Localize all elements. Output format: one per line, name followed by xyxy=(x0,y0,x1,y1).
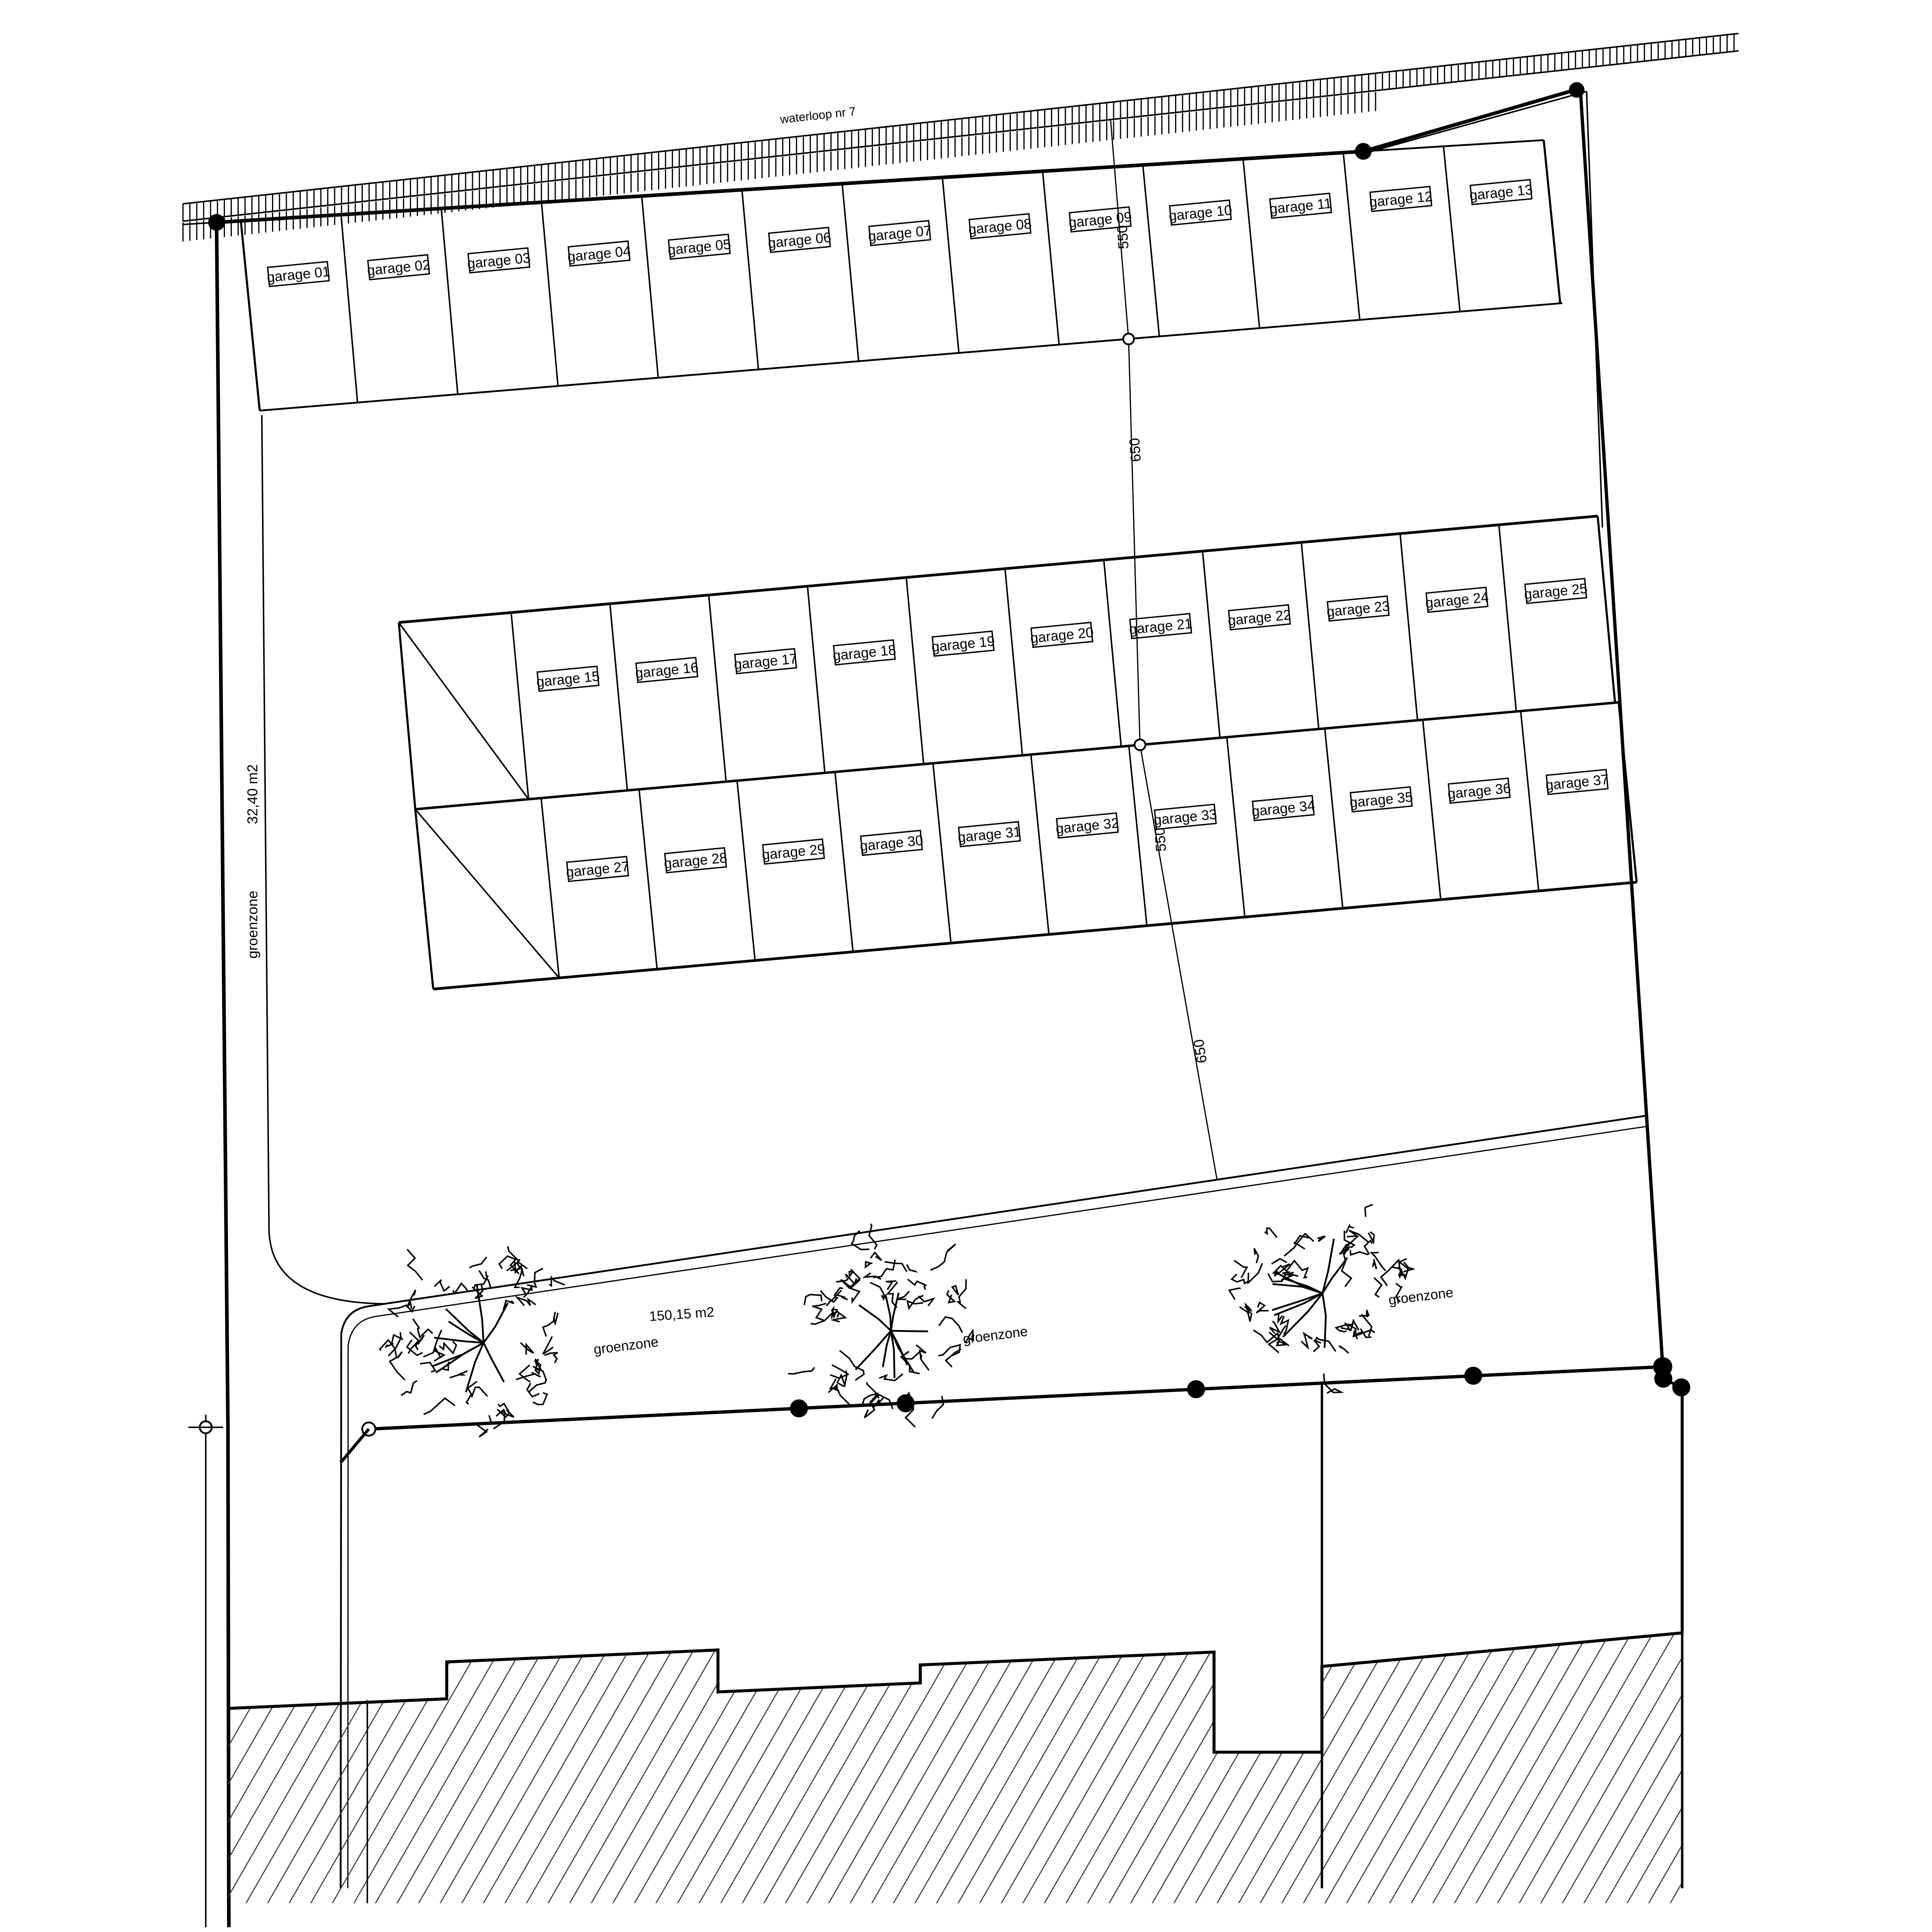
hatch-line xyxy=(1032,1624,1205,1924)
boundary-point-dot xyxy=(790,1400,808,1418)
garage-label: garage 02 xyxy=(366,255,431,280)
tree-foliage-scribble xyxy=(952,1286,958,1295)
tree-foliage-scribble xyxy=(1265,1228,1277,1238)
ramp-cell-diagonal xyxy=(415,809,559,978)
garage-cell-divider xyxy=(808,586,825,773)
green-strip-east-line xyxy=(262,415,384,1304)
tree-foliage-scribble xyxy=(862,1382,877,1405)
tree-foliage-scribble xyxy=(812,1303,826,1320)
tree-foliage-scribble xyxy=(907,1295,923,1308)
survey-circle-2 xyxy=(1134,740,1145,750)
garage-label: garage 04 xyxy=(566,241,631,266)
boundary-west xyxy=(216,223,228,1426)
tree-3 xyxy=(1229,1204,1413,1393)
building-outline xyxy=(228,1633,1682,1752)
hatch-line xyxy=(752,1624,924,1924)
tree-foliage-scribble xyxy=(871,1253,882,1260)
tree-foliage-scribble xyxy=(420,1362,435,1372)
garage-row-left-edge xyxy=(415,809,434,989)
hatch-line xyxy=(450,1624,622,1924)
tree-foliage-scribble xyxy=(907,1265,915,1272)
garage-cell-divider xyxy=(541,202,558,386)
hatch-line xyxy=(1054,1624,1226,1924)
hatch-line xyxy=(1140,1624,1313,1924)
hatch-line xyxy=(191,1624,363,1924)
garage-cell-divider xyxy=(610,604,628,791)
garage-cell-divider xyxy=(639,789,657,969)
hatch-line xyxy=(558,1624,730,1924)
garage-cell-divider xyxy=(1143,165,1160,337)
tree-foliage-scribble xyxy=(520,1343,534,1355)
hatch-line xyxy=(881,1624,1054,1924)
garage-label: garage 27 xyxy=(565,856,630,881)
hatch-line xyxy=(1658,1624,1830,1924)
garage-label: garage 36 xyxy=(1447,778,1512,803)
hatch-line xyxy=(687,1624,859,1924)
hatch-line xyxy=(709,1624,881,1924)
tree-branch xyxy=(859,1305,891,1331)
tree-foliage-scribble xyxy=(1339,1346,1349,1353)
hatch-line xyxy=(320,1624,493,1924)
hatch-line xyxy=(989,1624,1162,1924)
garage-cell-divider xyxy=(441,208,458,394)
hatch-line xyxy=(903,1624,1075,1924)
boundary-northeast xyxy=(1363,88,1580,151)
tree-foliage-scribble xyxy=(543,1318,554,1336)
tree-branch xyxy=(484,1343,504,1382)
hatch-line xyxy=(925,1624,1097,1924)
hatch-line xyxy=(471,1624,644,1924)
garage-label: garage 24 xyxy=(1425,587,1490,612)
tree-foliage-scribble xyxy=(434,1280,450,1291)
hatch-line xyxy=(622,1624,795,1924)
hatch-line xyxy=(1421,1624,1593,1924)
tree-foliage-scribble xyxy=(517,1298,536,1306)
garage-blocks: garage 01garage 02garage 03garage 04gara… xyxy=(216,140,1636,989)
tree-foliage-scribble xyxy=(1254,1248,1259,1263)
tree-foliage-scribble xyxy=(870,1282,886,1300)
hatch-line xyxy=(18,1624,190,1924)
hatch-line xyxy=(1248,1624,1420,1924)
garage-cell-divider xyxy=(1400,534,1417,720)
garage-label: garage 25 xyxy=(1523,578,1588,604)
hatch-line xyxy=(1615,1624,1787,1924)
dim-550-top: 550 xyxy=(1114,224,1131,250)
green-strip-area-label: 32,40 m2 xyxy=(244,764,260,824)
garage-cell-divider xyxy=(737,781,755,960)
tree-foliage-scribble xyxy=(413,1319,432,1337)
hatch-line xyxy=(1550,1624,1723,1924)
tree-foliage-scribble xyxy=(788,1367,815,1374)
hatch-line xyxy=(126,1624,298,1924)
boundary-west-lower xyxy=(228,1426,229,1927)
tree-foliage-scribble xyxy=(469,1257,486,1268)
hatch-line xyxy=(1572,1624,1744,1924)
hatch-line xyxy=(1809,1624,1932,1924)
hatch-line xyxy=(968,1624,1140,1924)
garage-cell-divider xyxy=(1499,525,1516,711)
hatch-line xyxy=(1378,1624,1550,1924)
tree-foliage-scribble xyxy=(916,1345,929,1370)
hatch-line xyxy=(406,1624,579,1924)
garage-label: garage 07 xyxy=(867,221,932,246)
hatch-line xyxy=(1399,1624,1571,1924)
tree-foliage-scribble xyxy=(543,1337,553,1354)
tree-foliage-scribble xyxy=(1365,1204,1373,1217)
green-zone-label-right: groenzone xyxy=(1388,1284,1454,1308)
tree-foliage-scribble xyxy=(407,1249,423,1280)
garage-cell-divider xyxy=(1343,153,1360,320)
hatch-line xyxy=(946,1624,1118,1924)
tree-foliage-scribble xyxy=(958,1279,966,1309)
boundary-corner-ne-dot xyxy=(1569,82,1584,98)
tree-foliage-scribble xyxy=(908,1279,926,1290)
garage-cell-divider xyxy=(1325,728,1343,908)
hatch-line xyxy=(104,1624,277,1924)
garage-label: garage 29 xyxy=(761,839,826,864)
tree-foliage-scribble xyxy=(500,1410,505,1422)
garage-cell-divider xyxy=(1444,146,1460,312)
garage-cell-divider xyxy=(1521,711,1539,891)
hatch-line xyxy=(148,1624,320,1924)
hatch-line xyxy=(816,1624,989,1924)
waterway-label: waterloop nr 7 xyxy=(779,104,856,126)
hatch-line xyxy=(860,1624,1032,1924)
garage-cell-divider xyxy=(1005,569,1022,755)
garage-label: garage 03 xyxy=(466,248,531,273)
garage-cell-divider xyxy=(742,190,759,369)
hatch-line xyxy=(1356,1624,1529,1924)
tree-foliage-scribble xyxy=(1347,1230,1369,1243)
garage-cell-divider xyxy=(1619,702,1637,882)
green-zone-label-mid: groenzone xyxy=(962,1323,1029,1347)
boundary-point-dot xyxy=(1464,1367,1483,1385)
hatch-line xyxy=(1270,1624,1442,1924)
hatch-line xyxy=(1076,1624,1248,1924)
garage-row-left-edge xyxy=(241,221,260,411)
hatch-line xyxy=(1507,1624,1679,1924)
tree-foliage-scribble xyxy=(527,1269,543,1287)
hatch-line xyxy=(385,1624,557,1924)
garage-label: garage 15 xyxy=(536,666,600,691)
hatch-line xyxy=(1486,1624,1658,1924)
tree-foliage-scribble xyxy=(507,1263,520,1271)
tree-foliage-scribble xyxy=(866,1262,872,1267)
tree-foliage-scribble xyxy=(930,1244,956,1270)
garage-cell-divider xyxy=(541,798,559,978)
hatch-line xyxy=(1205,1624,1378,1924)
tree-foliage-scribble xyxy=(811,1311,838,1324)
dim-650-upper: 650 xyxy=(1126,437,1144,463)
waterway-top-line xyxy=(183,34,1739,204)
garage-cell-divider xyxy=(1243,159,1260,328)
tree-foliage-scribble xyxy=(838,1295,848,1300)
hatch-line xyxy=(40,1624,212,1924)
garage-label: garage 21 xyxy=(1128,614,1193,639)
tree-foliage-scribble xyxy=(1359,1310,1369,1317)
hatch-line xyxy=(644,1624,816,1924)
garage-label: garage 08 xyxy=(968,214,1032,239)
tree-foliage-scribble xyxy=(1372,1259,1376,1269)
garage-cell-divider xyxy=(842,184,859,361)
green-zone-label-left: groenzone xyxy=(593,1334,659,1357)
hatch-line xyxy=(838,1624,1010,1924)
tree-foliage-scribble xyxy=(472,1387,488,1397)
tree-foliage-scribble xyxy=(423,1398,455,1415)
tree-foliage-scribble xyxy=(544,1353,558,1363)
garage-label: garage 18 xyxy=(832,640,897,665)
tree-foliage-scribble xyxy=(1248,1263,1262,1282)
garage-label: garage 19 xyxy=(930,631,995,656)
hatch-line xyxy=(1097,1624,1269,1924)
tree-foliage-scribble xyxy=(1229,1288,1240,1299)
hatch-line xyxy=(1594,1624,1766,1924)
tree-foliage-scribble xyxy=(938,1345,960,1355)
building-hatch xyxy=(18,1624,1932,1924)
tree-foliage-scribble xyxy=(836,1272,853,1282)
survey-circle-1 xyxy=(1123,333,1134,344)
hatch-line xyxy=(536,1624,708,1924)
hatch-line xyxy=(1226,1624,1399,1924)
garage-label: garage 30 xyxy=(859,830,924,855)
garage-label: garage 22 xyxy=(1227,605,1292,630)
garage-label: garage 12 xyxy=(1368,186,1433,211)
garage-label: garage 16 xyxy=(634,657,699,682)
garage-row-top-edge xyxy=(216,140,1544,223)
tree-foliage-scribble xyxy=(869,1224,877,1249)
garage-cell-divider xyxy=(1031,755,1049,934)
hatch-line xyxy=(579,1624,752,1924)
garage-label: garage 06 xyxy=(767,227,832,252)
boundary-east-inner xyxy=(1587,92,1602,528)
hatch-line xyxy=(1011,1624,1183,1924)
garage-cell-divider xyxy=(906,577,923,764)
green-strip-label: groenzone xyxy=(244,891,260,959)
garage-cell-divider xyxy=(835,772,853,952)
hatch-line xyxy=(1723,1624,1895,1924)
tree-foliage-scribble xyxy=(522,1287,532,1298)
garage-label: garage 05 xyxy=(667,234,732,259)
ramp-cell-diagonal xyxy=(399,622,529,799)
hatch-line xyxy=(1119,1624,1291,1924)
tree-foliage-scribble xyxy=(884,1262,906,1272)
site-plan-drawing: waterloop nr 7garage 01garage 02garage 0… xyxy=(0,0,1932,1932)
garage-label: garage 37 xyxy=(1545,769,1610,794)
hatch-line xyxy=(213,1624,385,1924)
hatch-line xyxy=(1335,1624,1507,1924)
hatch-line xyxy=(493,1624,665,1924)
garage-label: garage 13 xyxy=(1469,180,1534,205)
tree-foliage-scribble xyxy=(450,1371,468,1378)
tree-foliage-scribble xyxy=(439,1341,456,1353)
tree-foliage-scribble xyxy=(533,1393,547,1405)
tree-foliage-scribble xyxy=(932,1396,943,1418)
tree-branch xyxy=(446,1309,484,1343)
tree-foliage-scribble xyxy=(1232,1274,1248,1283)
tree-foliage-scribble xyxy=(520,1365,531,1382)
site-plan-page: waterloop nr 7garage 01garage 02garage 0… xyxy=(0,0,1932,1932)
garage-label: garage 33 xyxy=(1153,804,1218,829)
green-zone-area-label: 150,15 m2 xyxy=(649,1304,715,1324)
garage-label: garage 35 xyxy=(1349,787,1414,812)
hatch-line xyxy=(1184,1624,1356,1924)
tree-foliage-scribble xyxy=(554,1312,558,1323)
hatch-line xyxy=(169,1624,342,1924)
garage-row-top-edge xyxy=(415,702,1619,810)
hatch-line xyxy=(1313,1624,1485,1924)
green-strip-west: 32,40 m2groenzone xyxy=(244,415,384,1304)
dim-650-lower: 650 xyxy=(1190,1038,1210,1065)
tree-foliage-scribble xyxy=(918,1296,934,1306)
garage-cell-divider xyxy=(1227,737,1245,917)
garage-cell-divider xyxy=(642,196,658,378)
garage-row-left-edge xyxy=(399,622,415,809)
tree-foliage-scribble xyxy=(390,1352,405,1380)
hatch-line xyxy=(514,1624,687,1924)
garage-cell-divider xyxy=(942,177,959,353)
road-edge-inner xyxy=(348,1126,1647,1888)
garage-cell-divider xyxy=(933,763,951,943)
boundary-sw-diagonal xyxy=(341,1429,369,1463)
garage-cell-divider xyxy=(1043,171,1059,345)
tree-foliage-scribble xyxy=(1342,1248,1351,1287)
survey-polyline xyxy=(1111,121,1217,1180)
tree-foliage-scribble xyxy=(1301,1333,1313,1347)
tree-1 xyxy=(380,1246,565,1437)
tree-foliage-scribble xyxy=(1350,1250,1369,1255)
tree-branch xyxy=(1272,1284,1323,1293)
tree-2 xyxy=(788,1224,973,1427)
garage-label: garage 23 xyxy=(1326,596,1391,621)
tree-foliage-scribble xyxy=(939,1317,963,1332)
hatch-line xyxy=(1680,1624,1852,1924)
garage-label: garage 11 xyxy=(1269,193,1332,218)
tree-foliage-scribble xyxy=(947,1290,954,1303)
tree-foliage-scribble xyxy=(830,1365,848,1378)
garage-cell-divider xyxy=(1423,720,1441,900)
existing-buildings xyxy=(18,1382,1932,1924)
boundary-point-dot xyxy=(1187,1380,1205,1398)
garage-label: garage 20 xyxy=(1029,622,1094,647)
hatch-line xyxy=(1529,1624,1701,1924)
tree-foliage-scribble xyxy=(1317,1236,1325,1242)
tree-foliage-scribble xyxy=(401,1381,417,1396)
garage-cell-divider xyxy=(709,595,726,782)
hatch-line xyxy=(1701,1624,1874,1924)
garage-row-bottom-edge xyxy=(433,882,1636,989)
hatch-line xyxy=(1745,1624,1917,1924)
hatch-line xyxy=(428,1624,600,1924)
hatch-line xyxy=(601,1624,773,1924)
hatch-line xyxy=(1442,1624,1615,1924)
garage-cell-divider xyxy=(1301,543,1319,729)
hatch-line xyxy=(730,1624,903,1924)
hatch-line xyxy=(1291,1624,1464,1924)
hatch-line xyxy=(277,1624,449,1924)
hatch-line xyxy=(1788,1624,1932,1924)
hatch-line xyxy=(61,1624,234,1924)
hatch-line xyxy=(1766,1624,1932,1924)
garage-cell-divider xyxy=(1202,551,1220,738)
garage-label: garage 34 xyxy=(1251,796,1316,821)
tree-foliage-scribble xyxy=(830,1379,849,1404)
hatch-line xyxy=(234,1624,406,1924)
garage-cell-divider xyxy=(1104,560,1121,747)
garage-label: garage 32 xyxy=(1055,813,1120,838)
site-boundary xyxy=(183,82,1690,1927)
garage-label: garage 28 xyxy=(663,848,728,873)
garage-label: garage 31 xyxy=(957,821,1022,847)
tree-foliage-scribble xyxy=(879,1374,903,1381)
tree-foliage-scribble xyxy=(1381,1260,1400,1286)
survey-line: 550650550650 xyxy=(1111,121,1217,1180)
garage-label: garage 01 xyxy=(266,262,331,287)
garage-cell-divider xyxy=(511,612,529,799)
tree-foliage-scribble xyxy=(1272,1259,1287,1264)
tree-foliage-scribble xyxy=(804,1294,822,1305)
hatch-line xyxy=(795,1624,967,1924)
hatch-line xyxy=(1162,1624,1334,1924)
garage-label: garage 17 xyxy=(733,649,798,674)
hatch-line xyxy=(665,1624,838,1924)
garage-cell-divider xyxy=(1544,140,1560,303)
tree-foliage-scribble xyxy=(1256,1303,1269,1313)
tree-foliage-scribble xyxy=(476,1424,488,1437)
garage-cell-divider xyxy=(1129,746,1147,925)
garage-cell-divider xyxy=(341,215,358,403)
hatch-line xyxy=(1464,1624,1636,1924)
tree-foliage-scribble xyxy=(1374,1278,1381,1297)
hatch-line xyxy=(1637,1624,1809,1924)
hatch-line xyxy=(299,1624,471,1924)
tree-foliage-scribble xyxy=(850,1288,859,1302)
tree-branch xyxy=(891,1331,928,1332)
hatch-line xyxy=(364,1624,536,1924)
tree-foliage-scribble xyxy=(1313,1340,1321,1352)
garage-row-top-edge xyxy=(399,516,1598,623)
garage-label: garage 10 xyxy=(1168,200,1233,225)
dim-550-mid: 550 xyxy=(1151,827,1169,852)
